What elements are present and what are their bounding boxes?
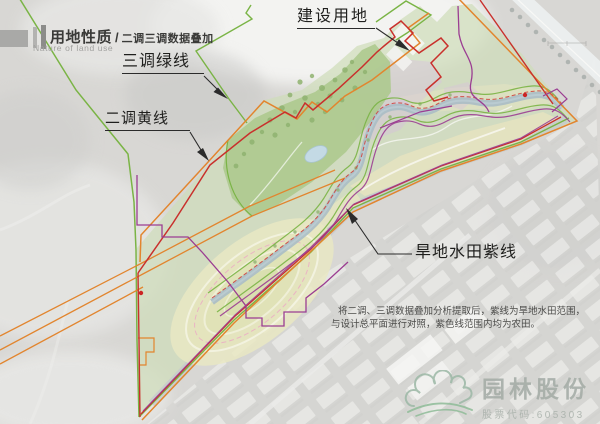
title-accent-block: [0, 30, 28, 47]
stock-code: 股票代码:605303: [482, 406, 590, 421]
title-separator: /: [115, 30, 119, 45]
callout-yellow-line: 二调黄线: [105, 111, 190, 131]
callout-purple-line: 旱地水田紫线: [415, 244, 517, 262]
map-canvas: [0, 0, 600, 424]
callout-green-line: 三调绿线: [122, 53, 204, 74]
note-line-2: 与设计总平面进行对照，紫色线范围内均为农田。: [331, 319, 587, 332]
company-name: 园林股份: [482, 370, 590, 404]
slide: 用地性质/二调三调数据叠加 Nature of land use 三调绿线 二调…: [0, 0, 600, 424]
analysis-note: 将二调、三调数据叠加分析提取后，紫线为旱地水田范围， 与设计总平面进行对照，紫色…: [331, 306, 587, 332]
company-watermark: 园林股份 股票代码:605303: [402, 370, 592, 420]
callout-construction-land: 建设用地: [297, 8, 375, 29]
title-block: 用地性质/二调三调数据叠加 Nature of land use: [0, 24, 260, 54]
cloud-icon: [402, 370, 480, 418]
page-subtitle: 二调三调数据叠加: [122, 33, 214, 45]
note-line-1: 将二调、三调数据叠加分析提取后，紫线为旱地水田范围，: [331, 306, 587, 319]
page-title-en: Nature of land use: [33, 43, 113, 53]
